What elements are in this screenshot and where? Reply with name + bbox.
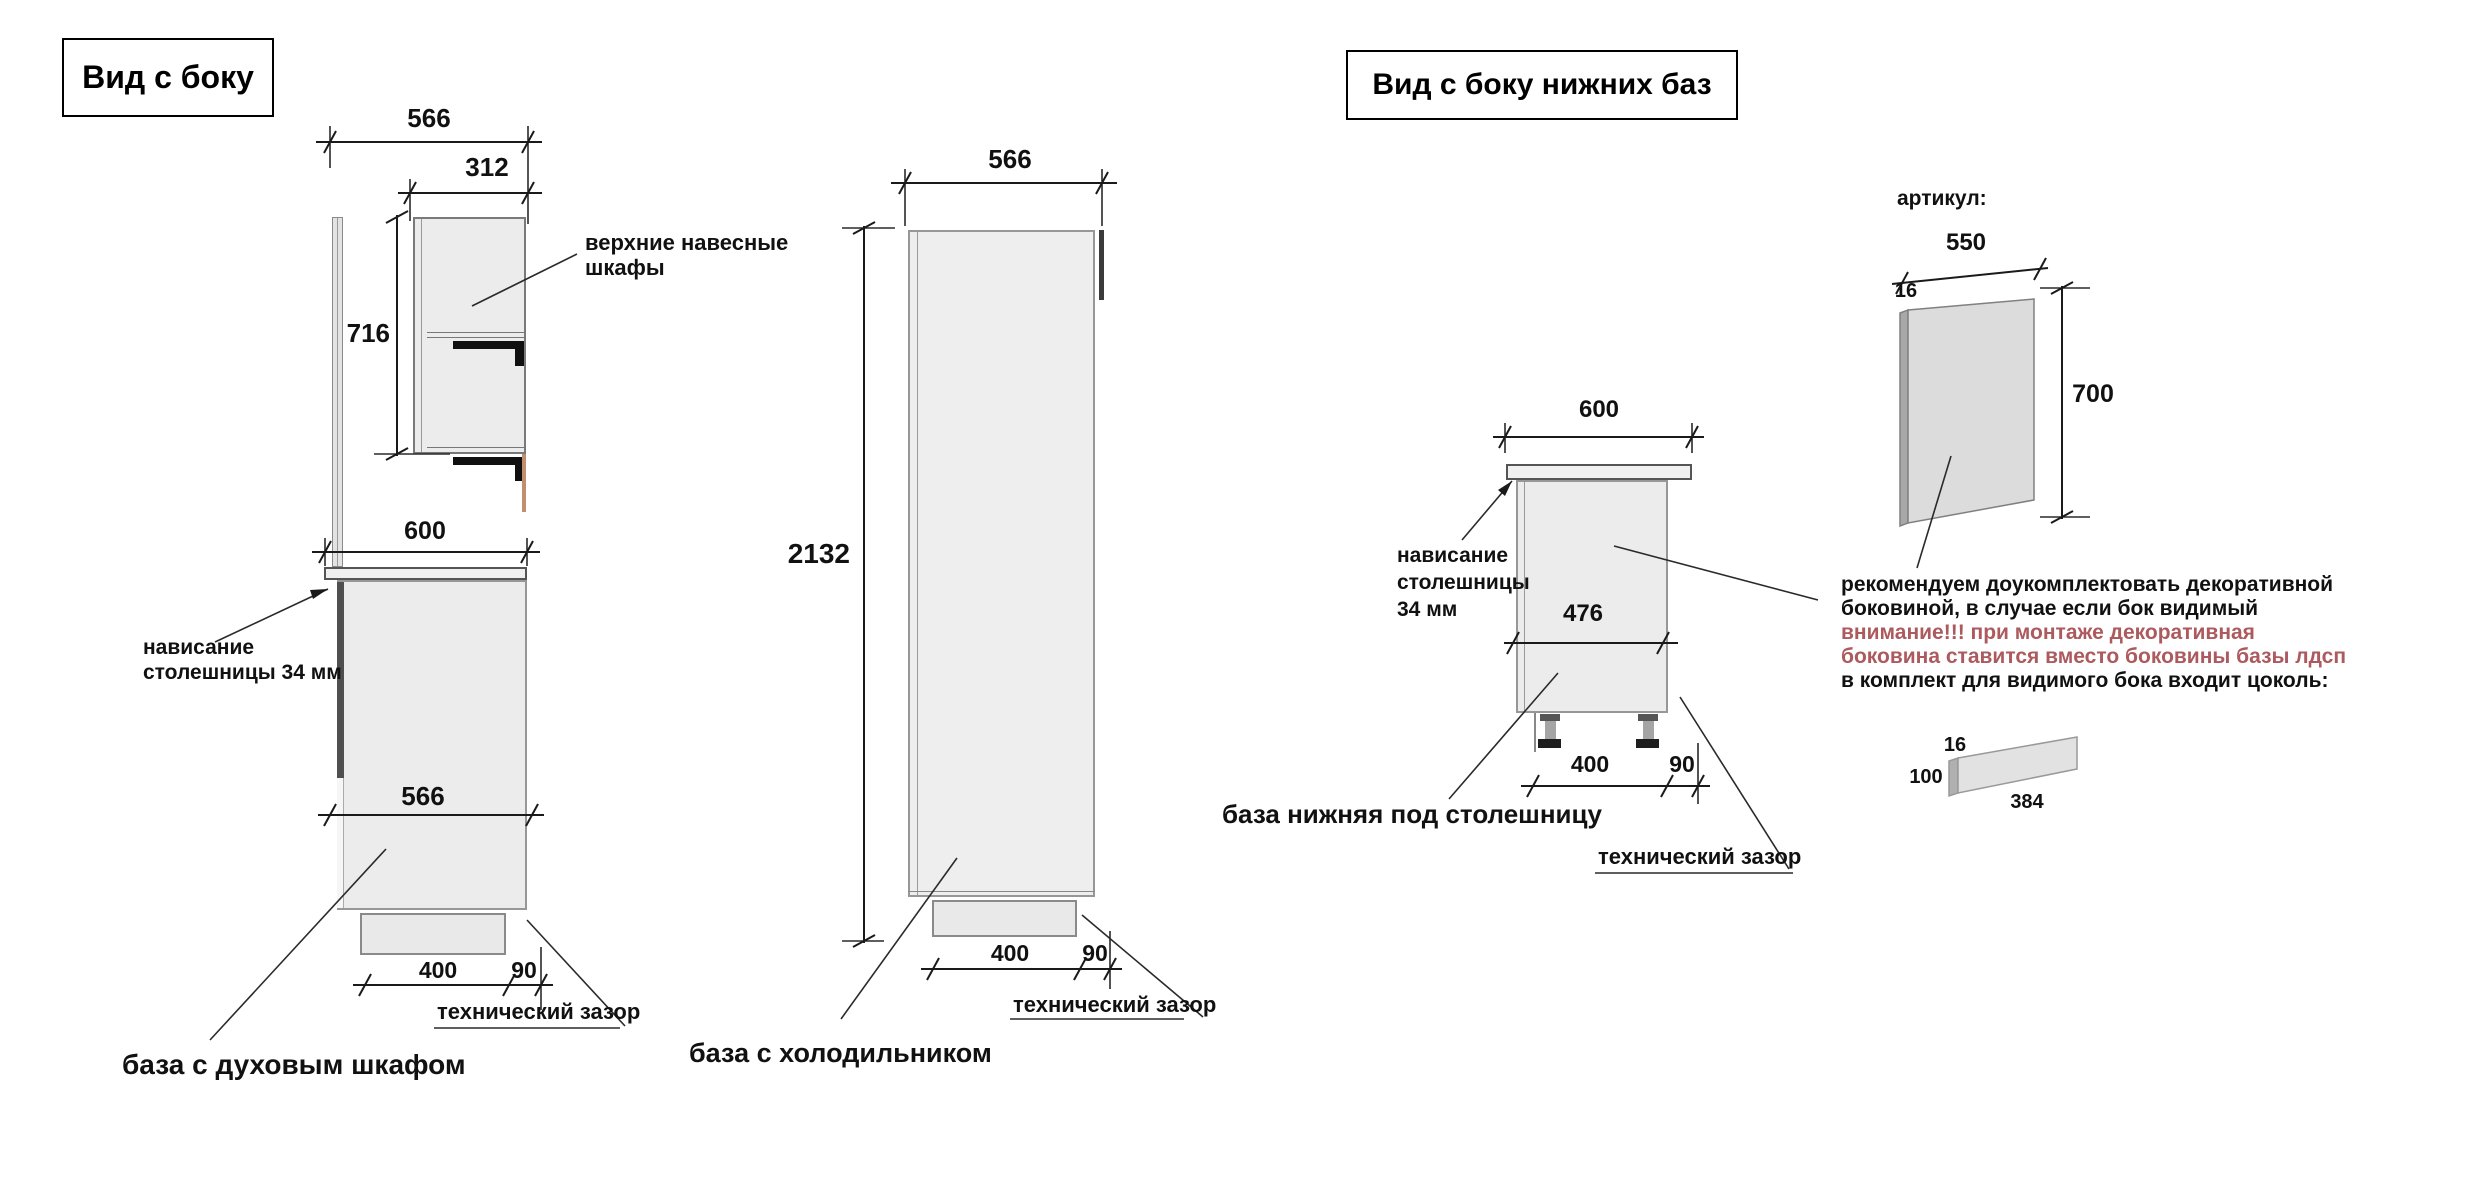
- right-leg2-stem: [1643, 721, 1654, 739]
- decor-panel-edge-face: [1900, 310, 1908, 526]
- tick: [1096, 172, 1108, 194]
- dim-400-left: 400: [398, 958, 478, 983]
- middle-cabinet-bottom-line: [908, 891, 1095, 892]
- plinth-piece-face: [1958, 737, 2077, 793]
- left-shelf1-line-a: [427, 332, 526, 333]
- dim-2132: 2132: [786, 539, 850, 570]
- label-tech-gap-left: технический зазор: [437, 1000, 640, 1024]
- leader-overhang-right: [1462, 481, 1512, 540]
- tick: [521, 541, 533, 563]
- left-shelf1-line-b: [427, 337, 526, 338]
- arrowhead-overhang-right: [1498, 481, 1512, 496]
- left-countertop: [324, 567, 527, 580]
- tick: [927, 958, 939, 980]
- dim-550: 550: [1926, 230, 2006, 256]
- right-leg1-cap: [1540, 714, 1560, 721]
- tick: [404, 182, 416, 204]
- tick: [522, 131, 534, 153]
- leader-decor-panel: [1917, 456, 1951, 568]
- dim-600-right: 600: [1559, 397, 1639, 423]
- tick: [522, 182, 534, 204]
- dim-312: 312: [447, 153, 527, 182]
- label-wall-cabinets-line2: шкафы: [585, 256, 665, 280]
- dim-16-plinth: 16: [1935, 734, 1975, 756]
- tick: [324, 804, 336, 826]
- left-wall-cabinet-edge-strip: [522, 454, 526, 512]
- tick: [2051, 511, 2073, 523]
- left-tall-side-panel-edge-line: [337, 218, 338, 566]
- label-wall-cabinets-line1: верхние навесные: [585, 231, 788, 255]
- middle-plinth: [932, 900, 1077, 937]
- caption-oven-base: база с духовым шкафом: [122, 1050, 466, 1081]
- middle-tall-cabinet-body: [908, 230, 1095, 897]
- dim-700: 700: [2063, 381, 2123, 409]
- dim-600-left: 600: [385, 518, 465, 546]
- label-overhang-left-line2: столешницы 34 мм: [143, 661, 342, 684]
- middle-cabinet-side-edge-line: [917, 232, 918, 895]
- left-shelf1-bracket-bar: [453, 341, 524, 349]
- leader-overhang-left: [215, 589, 328, 642]
- tick: [1661, 775, 1673, 797]
- label-overhang-right-line3: 34 мм: [1397, 598, 1457, 621]
- dim-716: 716: [328, 319, 390, 348]
- note-line-5: в комплект для видимого бока входит цоко…: [1841, 669, 2328, 692]
- dim-566-middle: 566: [970, 145, 1050, 174]
- note-line-1: рекомендуем доукомплектовать декоративно…: [1841, 573, 2333, 596]
- right-countertop: [1506, 464, 1692, 480]
- label-article: артикул:: [1897, 187, 1987, 210]
- right-leg1-stem: [1545, 721, 1556, 739]
- left-shelf2-bracket-bar: [453, 457, 524, 465]
- label-tech-gap-right: технический зазор: [1598, 845, 1801, 869]
- right-base-cabinet-body: [1516, 480, 1668, 713]
- dim-16-panel: 16: [1886, 280, 1926, 302]
- dim-384-plinth: 384: [1997, 791, 2057, 813]
- tick: [359, 974, 371, 996]
- tick: [2034, 258, 2046, 280]
- right-leg1-foot: [1538, 739, 1561, 748]
- tick: [853, 222, 875, 234]
- right-leg2-foot: [1636, 739, 1659, 748]
- dim-90-middle: 90: [1067, 941, 1123, 966]
- dim-90-right: 90: [1654, 752, 1710, 777]
- technical-drawing-canvas: Вид с боку Вид с боку нижних баз: [0, 0, 2484, 1198]
- caption-base-under-countertop: база нижняя под столешницу: [1222, 800, 1602, 829]
- tick: [386, 448, 408, 460]
- tick: [386, 211, 408, 223]
- left-base-cabinet-body: [337, 580, 527, 910]
- note-line-3-warning: внимание!!! при монтаже декоративная: [1841, 621, 2255, 644]
- tick: [1527, 775, 1539, 797]
- dim-566-top-left: 566: [389, 104, 469, 133]
- right-leg2-cap: [1638, 714, 1658, 721]
- label-overhang-right-line2: столешницы: [1397, 571, 1530, 594]
- dim-90-left: 90: [496, 958, 552, 983]
- left-base-cabinet-light-edge: [337, 778, 344, 908]
- right-view-title: Вид с боку нижних баз: [1372, 68, 1711, 102]
- note-line-2: боковиной, в случае если бок видимый: [1841, 597, 2258, 620]
- caption-fridge-base: база с холодильником: [689, 1039, 992, 1069]
- tick: [319, 541, 331, 563]
- left-view-title: Вид с боку: [82, 59, 254, 96]
- tick: [899, 172, 911, 194]
- label-overhang-right-line1: нависание: [1397, 544, 1508, 567]
- left-shelf2-line-b: [427, 452, 526, 453]
- note-line-4-warning: боковина ставится вместо боковины базы л…: [1841, 645, 2346, 668]
- dim-100-plinth: 100: [1896, 766, 1956, 788]
- tick: [853, 935, 875, 947]
- decor-panel-face: [1908, 299, 2034, 523]
- dim-476: 476: [1543, 601, 1623, 627]
- left-shelf1-bracket-leg: [515, 341, 524, 366]
- dim-566-base: 566: [383, 782, 463, 811]
- tick: [1692, 775, 1704, 797]
- arrowhead-overhang-left: [310, 589, 328, 599]
- left-wall-cabinet-side-edge-line: [421, 219, 422, 452]
- middle-cabinet-top-corner-strip: [1099, 230, 1104, 300]
- left-shelf2-line-a: [427, 447, 526, 448]
- right-view-title-box: Вид с боку нижних баз: [1346, 50, 1738, 120]
- label-tech-gap-middle: технический зазор: [1013, 993, 1216, 1017]
- right-base-cabinet-edge-line: [1524, 482, 1525, 711]
- dim-400-right: 400: [1550, 752, 1630, 777]
- tick: [526, 804, 538, 826]
- tick: [1686, 426, 1698, 448]
- label-overhang-left-line1: нависание: [143, 636, 254, 659]
- right-cabinet-back-line: [1534, 713, 1536, 752]
- left-wall-cabinet-body: [413, 217, 526, 454]
- left-plinth: [360, 913, 506, 955]
- tick: [324, 131, 336, 153]
- tick: [1499, 426, 1511, 448]
- tick: [2051, 282, 2073, 294]
- left-view-title-box: Вид с боку: [62, 38, 274, 117]
- dim-400-middle: 400: [970, 941, 1050, 966]
